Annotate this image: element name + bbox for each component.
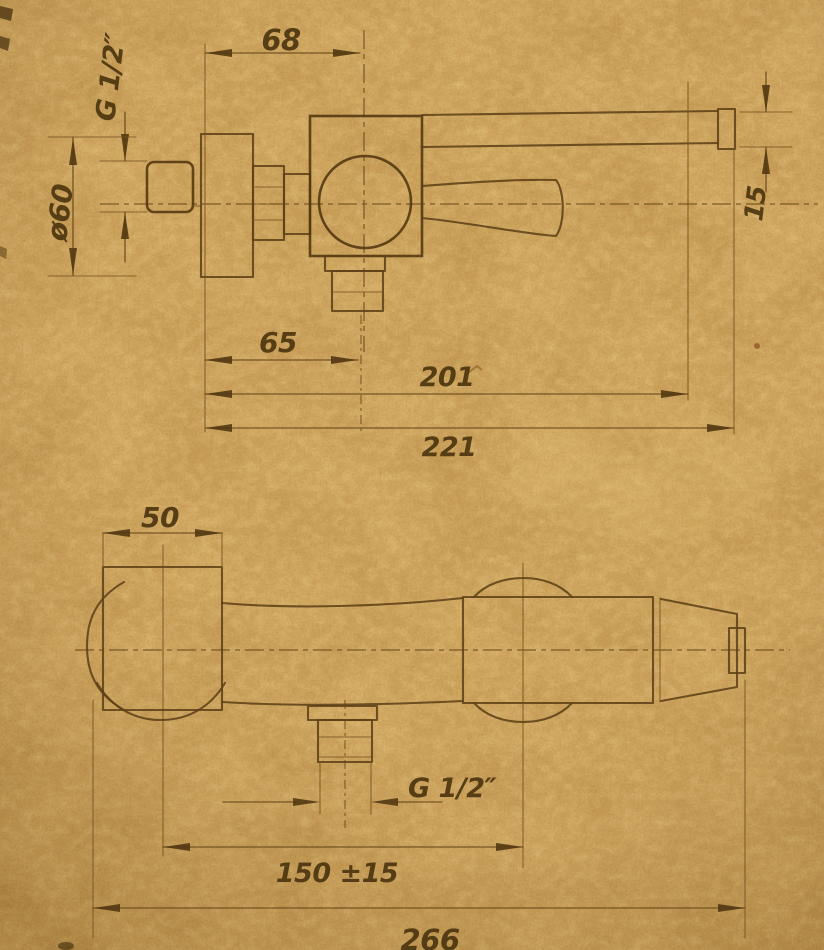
dim-65-label: 65 [259, 326, 297, 359]
dim-221-label: 221 [422, 432, 477, 463]
dim-flange-diameter-label: ø60 [40, 183, 80, 244]
dim-50-label: 50 [141, 501, 179, 534]
technical-drawing: 68 G 1/2″ ø60 15 [0, 0, 824, 950]
rust-dot [754, 343, 760, 349]
edge-speck [58, 942, 74, 950]
dim-outlet-thread-label: G 1/2″ [408, 773, 496, 804]
dim-68-label: 68 [261, 23, 301, 57]
dim-150-label: 150 ±15 [276, 858, 398, 889]
dim-lever-thickness-label: 15 [739, 184, 773, 223]
scanned-drawing-page: 68 G 1/2″ ø60 15 [0, 0, 824, 950]
dim-201-label: 201 [420, 362, 475, 393]
dim-266-label: 266 [400, 923, 459, 950]
